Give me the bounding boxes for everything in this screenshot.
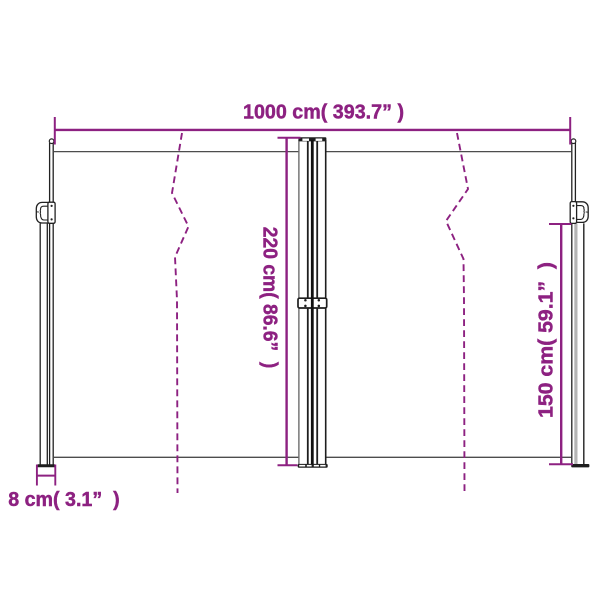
svg-text:150 cm( 59.1” ): 150 cm( 59.1” ) — [535, 262, 557, 418]
svg-text:8 cm( 3.1” ): 8 cm( 3.1” ) — [8, 489, 120, 511]
svg-text:220 cm( 86.6” ): 220 cm( 86.6” ) — [259, 227, 281, 368]
svg-text:1000 cm( 393.7” ): 1000 cm( 393.7” ) — [243, 102, 404, 124]
